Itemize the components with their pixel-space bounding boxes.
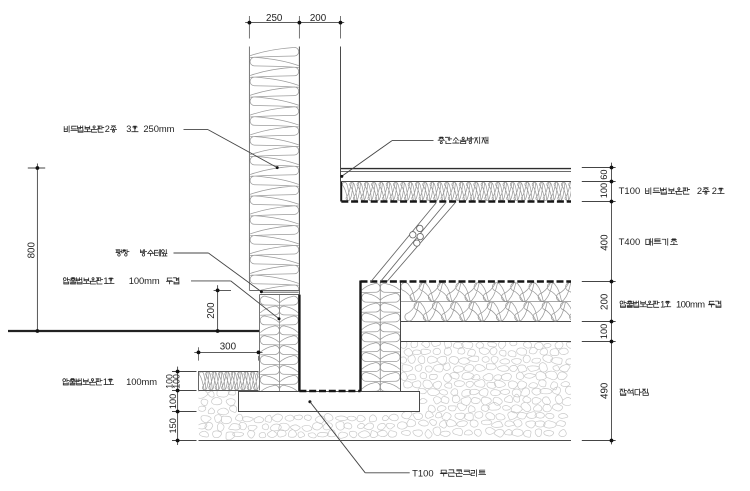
svg-text:1: 1 — [660, 299, 665, 309]
svg-text:100mm: 100mm — [129, 275, 160, 286]
svg-text:800: 800 — [26, 241, 37, 258]
svg-text:100: 100 — [168, 394, 178, 409]
svg-text:2: 2 — [105, 124, 110, 134]
svg-text:150: 150 — [168, 418, 178, 433]
svg-text:490: 490 — [599, 382, 610, 399]
svg-text:300: 300 — [220, 341, 237, 352]
svg-text:100: 100 — [599, 324, 609, 339]
svg-text:T100: T100 — [619, 185, 641, 196]
svg-text:1: 1 — [103, 377, 108, 387]
svg-text:60: 60 — [599, 169, 609, 179]
svg-text:100: 100 — [172, 374, 182, 389]
svg-text:100: 100 — [599, 183, 609, 198]
svg-text:2: 2 — [697, 185, 702, 196]
svg-text:250mm: 250mm — [143, 123, 174, 134]
svg-text:100mm: 100mm — [676, 298, 705, 309]
svg-text:400: 400 — [599, 234, 610, 251]
svg-text:100mm: 100mm — [126, 376, 157, 387]
svg-text:T100: T100 — [412, 467, 434, 478]
svg-text:2: 2 — [712, 185, 717, 196]
svg-text:250: 250 — [266, 13, 283, 24]
svg-text:200: 200 — [206, 302, 217, 319]
svg-text:1: 1 — [103, 276, 108, 286]
svg-text:3: 3 — [126, 124, 131, 134]
svg-text:T400: T400 — [619, 236, 641, 247]
svg-text:200: 200 — [599, 293, 610, 310]
svg-text:200: 200 — [310, 13, 327, 24]
